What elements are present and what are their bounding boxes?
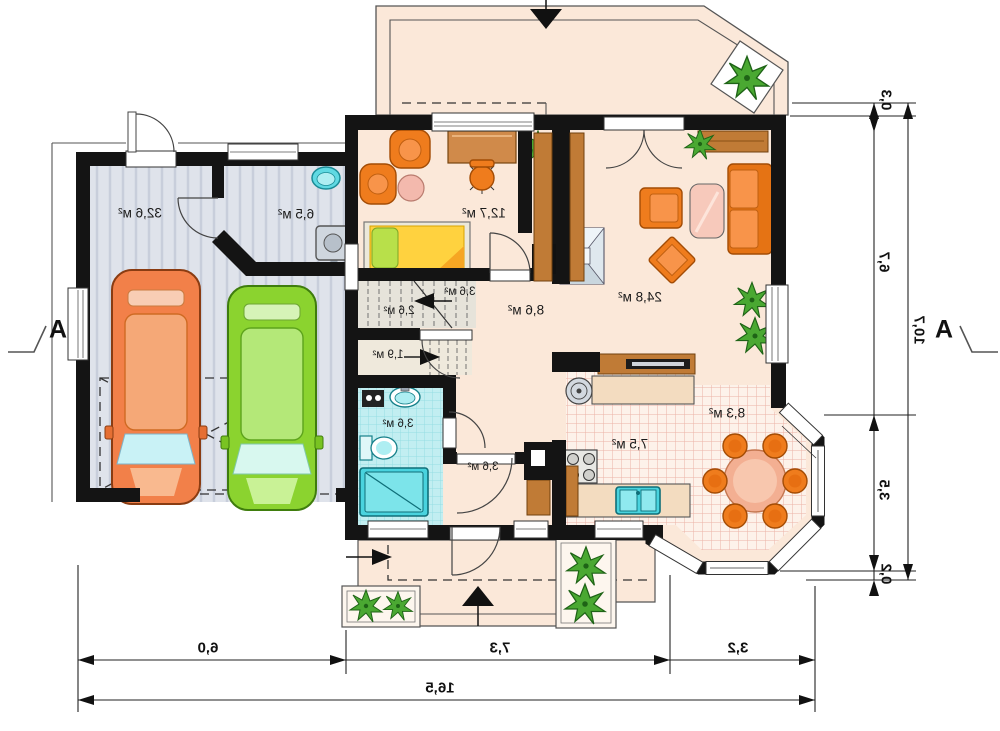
washbasin bbox=[390, 386, 420, 407]
flue-opening bbox=[531, 450, 545, 466]
room-area-vestibule: 3,6 м² bbox=[468, 461, 499, 473]
room-area-dining: 8,3 м² bbox=[709, 406, 745, 421]
section-marker-left: A bbox=[49, 316, 67, 345]
bed bbox=[364, 222, 470, 274]
room-area-understairs: 1,9 м² bbox=[373, 349, 404, 361]
floor-plan-drawing bbox=[0, 0, 1000, 731]
dim-right-1: 0,3 bbox=[878, 90, 895, 111]
dim-right-total: 10,7 bbox=[911, 315, 928, 344]
kitchen-door-leaf bbox=[566, 466, 578, 516]
room-area-hall: 8,6 м² bbox=[508, 303, 544, 318]
floor-plan-page: 32,6 м² 6,5 м² 12,7 м² 3,6 м² 2,6 м² 1,9… bbox=[0, 0, 1000, 731]
toilet bbox=[360, 436, 397, 460]
garage-door-opening bbox=[126, 151, 176, 167]
living-window bbox=[766, 285, 788, 363]
front-door-opening bbox=[450, 527, 500, 540]
vestibule-closet bbox=[527, 480, 550, 515]
utility-house-door bbox=[345, 244, 358, 290]
room-area-stair-upper: 3,6 м² bbox=[445, 286, 476, 298]
sofa bbox=[728, 164, 772, 254]
dim-right-3: 3,5 bbox=[876, 480, 893, 501]
kitchen-island bbox=[592, 376, 694, 404]
room-area-bedroom: 12,7 м² bbox=[462, 206, 506, 221]
dim-bottom-2: 7,3 bbox=[490, 640, 511, 657]
side-table bbox=[398, 175, 424, 201]
bathroom-window bbox=[368, 521, 428, 538]
sink bbox=[616, 487, 660, 514]
dim-right-2: 6,7 bbox=[876, 252, 893, 273]
landing-opening bbox=[420, 330, 472, 340]
kitchen-window bbox=[595, 521, 643, 538]
room-area-kitchen: 7,5 м² bbox=[612, 437, 648, 452]
room-area-living: 24,8 м² bbox=[618, 290, 662, 305]
bedroom-door-opening bbox=[490, 270, 530, 281]
car-orange bbox=[105, 270, 207, 504]
armchair bbox=[640, 188, 682, 228]
dim-bottom-1: 6,0 bbox=[198, 640, 219, 657]
terrace bbox=[376, 0, 788, 115]
entrance-porch bbox=[342, 538, 655, 628]
car-green bbox=[221, 286, 323, 510]
room-area-garage: 32,6 м² bbox=[118, 206, 162, 221]
dim-bottom-3: 3,2 bbox=[728, 640, 749, 657]
shower-tub bbox=[360, 468, 428, 516]
room-area-stairs: 2,6 м² bbox=[384, 305, 415, 317]
bath-door-opening bbox=[443, 418, 456, 448]
hall-window bbox=[514, 521, 548, 538]
section-marker-right: A bbox=[935, 316, 953, 345]
room-area-utility: 6,5 м² bbox=[278, 207, 314, 222]
room-area-bathroom: 3,6 м² bbox=[383, 418, 414, 430]
dim-bottom-total: 16,5 bbox=[425, 680, 454, 697]
dim-right-4: 0,2 bbox=[878, 564, 895, 585]
terrace-door-opening bbox=[604, 117, 684, 130]
porch-planter-left bbox=[342, 586, 420, 627]
